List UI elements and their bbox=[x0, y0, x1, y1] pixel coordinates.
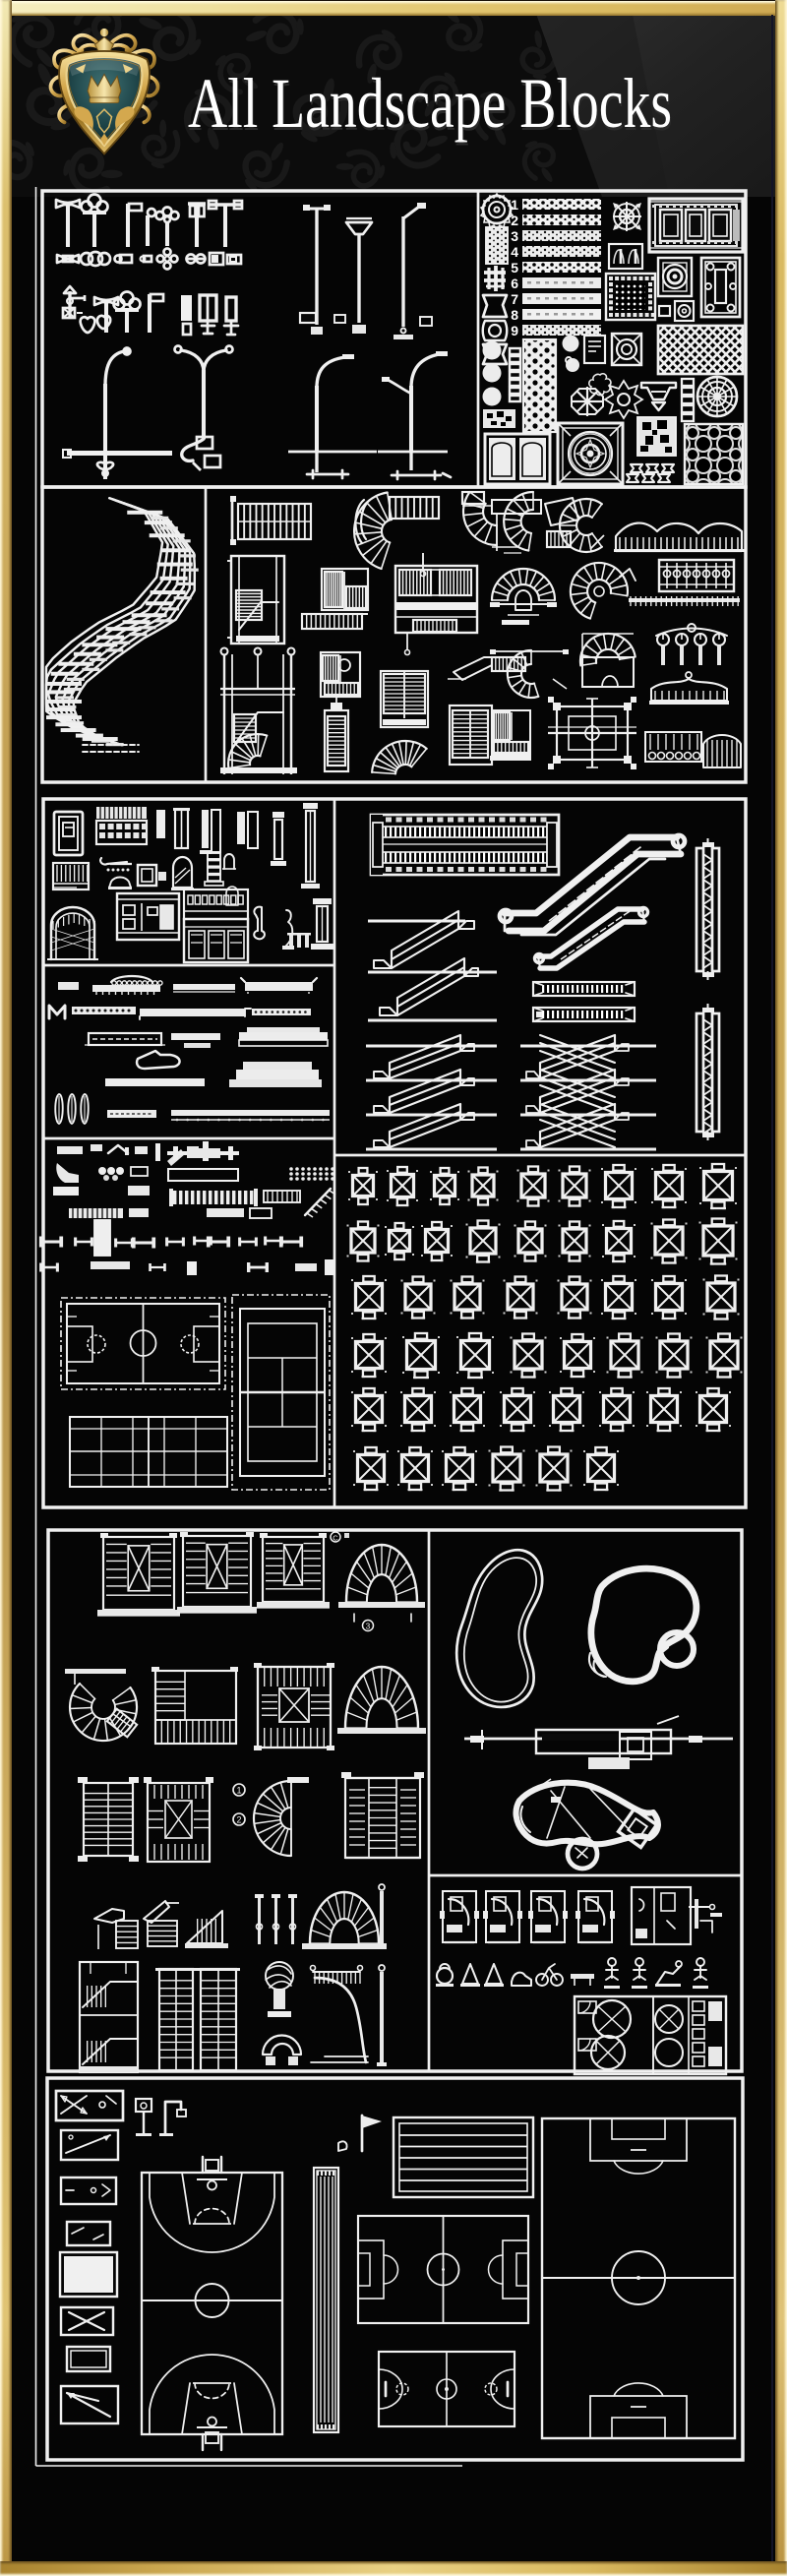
svg-text:2: 2 bbox=[236, 1815, 241, 1825]
svg-text:2: 2 bbox=[511, 213, 518, 228]
svg-text:1: 1 bbox=[236, 1786, 241, 1796]
svg-text:C: C bbox=[333, 1534, 338, 1543]
svg-text:9: 9 bbox=[511, 323, 518, 338]
svg-text:7: 7 bbox=[511, 291, 518, 307]
svg-text:8: 8 bbox=[511, 307, 518, 323]
svg-text:4: 4 bbox=[511, 244, 518, 260]
svg-text:3: 3 bbox=[366, 1623, 371, 1631]
svg-text:1: 1 bbox=[511, 197, 518, 213]
svg-text:5: 5 bbox=[511, 260, 518, 276]
svg-text:3: 3 bbox=[511, 228, 518, 244]
svg-text:6: 6 bbox=[511, 276, 518, 291]
